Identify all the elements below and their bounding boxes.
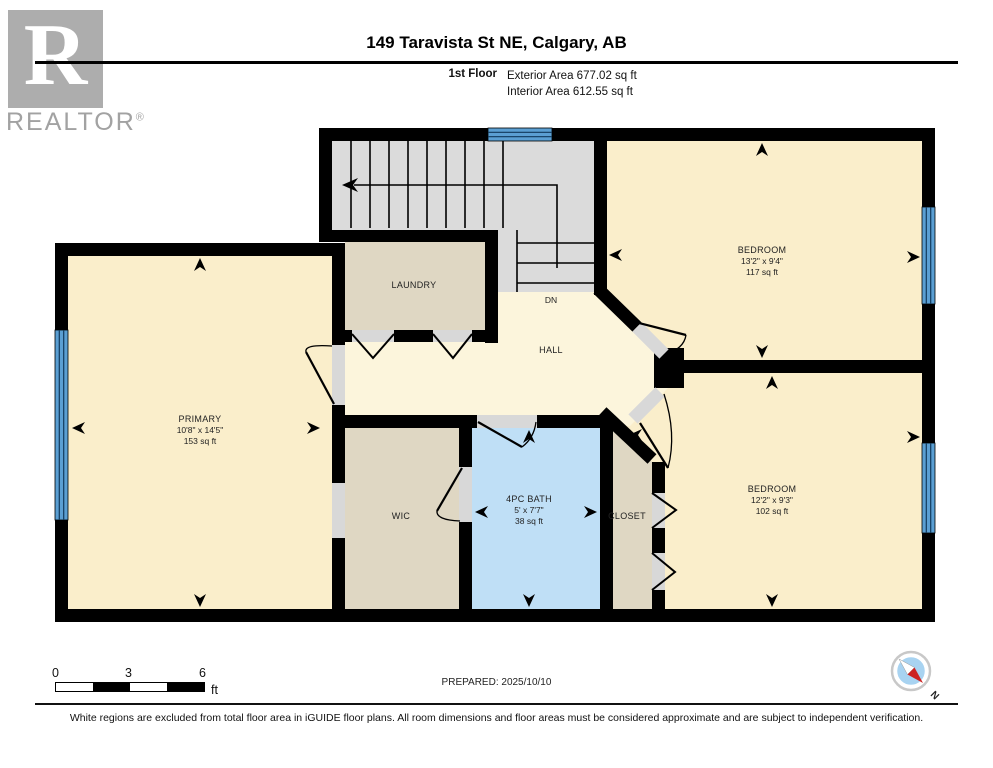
bedroom-top-dims: 13'2" x 9'4" [741, 256, 783, 266]
bedroom-bottom-dims: 12'2" x 9'3" [751, 495, 793, 505]
stairs-dn-label: DN [545, 295, 557, 305]
laundry-label: LAUNDRY [392, 280, 437, 290]
window-top [488, 128, 552, 141]
bath-label: 4PC BATH [506, 494, 552, 504]
primary-dims: 10'8" x 14'5" [177, 425, 224, 435]
compass-north-label: N [928, 689, 941, 702]
bedroom-top-label: BEDROOM [738, 245, 787, 255]
bath-dims: 5' x 7'7" [514, 505, 543, 515]
primary-area: 153 sq ft [184, 436, 217, 446]
floor-plan-page: R REALTOR® 149 Taravista St NE, Calgary,… [0, 0, 993, 768]
window-bedroom-bottom [922, 443, 935, 533]
window-primary [55, 330, 68, 520]
disclaimer-text: White regions are excluded from total fl… [0, 712, 993, 724]
primary-label: PRIMARY [179, 414, 222, 424]
compass-icon: N [890, 650, 942, 702]
bedroom-top-area: 117 sq ft [746, 267, 779, 277]
footer-divider [35, 703, 958, 705]
window-bedroom-top [922, 207, 935, 304]
closet-label: CLOSET [608, 511, 646, 521]
bedroom-bottom-label: BEDROOM [748, 484, 797, 494]
hall-label: HALL [539, 345, 563, 355]
bedroom-bottom-area: 102 sq ft [756, 506, 789, 516]
room-fills [68, 141, 922, 609]
prepared-date: PREPARED: 2025/10/10 [0, 677, 993, 688]
bath-area: 38 sq ft [515, 516, 544, 526]
wic-label: WIC [392, 511, 411, 521]
floor-plan-drawing: BEDROOM 13'2" x 9'4" 117 sq ft BEDROOM 1… [0, 0, 993, 768]
